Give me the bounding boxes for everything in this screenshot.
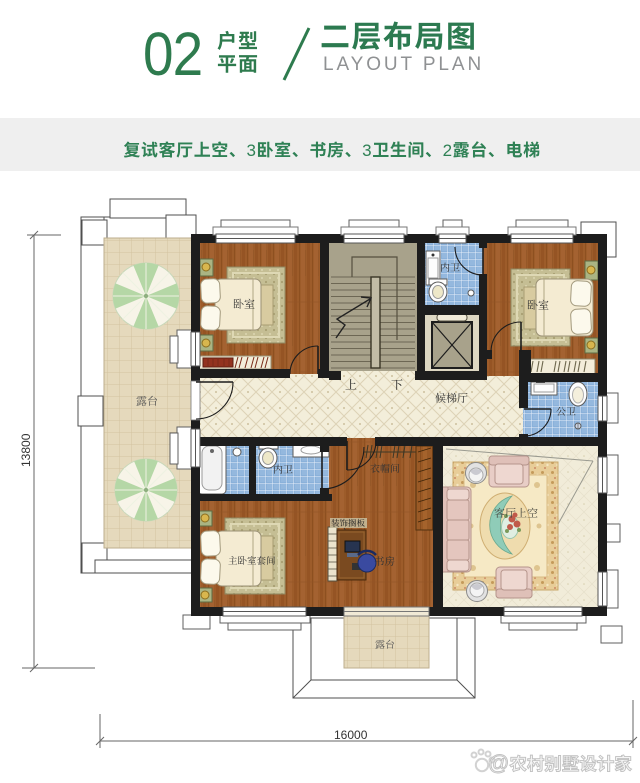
svg-text:卧室: 卧室: [527, 297, 549, 313]
svg-text:衣帽间: 衣帽间: [370, 460, 400, 475]
svg-text:@农村别墅设计家: @农村别墅设计家: [488, 751, 632, 776]
svg-text:装饰搁板: 装饰搁板: [331, 517, 366, 529]
svg-text:主卧室套间: 主卧室套间: [228, 553, 276, 567]
svg-text:候梯厅: 候梯厅: [435, 390, 468, 406]
svg-text:卧室: 卧室: [233, 296, 255, 312]
svg-text:书房: 书房: [374, 554, 395, 569]
svg-text:内卫: 内卫: [273, 461, 293, 476]
svg-text:客厅上空: 客厅上空: [494, 505, 538, 521]
svg-text:内卫: 内卫: [440, 259, 460, 274]
svg-text:16000: 16000: [334, 728, 368, 742]
svg-text:下: 下: [391, 376, 403, 393]
svg-text:13800: 13800: [19, 433, 33, 467]
svg-text:露台: 露台: [136, 393, 158, 409]
svg-text:露台: 露台: [375, 636, 395, 651]
svg-text:公卫: 公卫: [556, 403, 576, 418]
svg-text:上: 上: [345, 376, 357, 393]
